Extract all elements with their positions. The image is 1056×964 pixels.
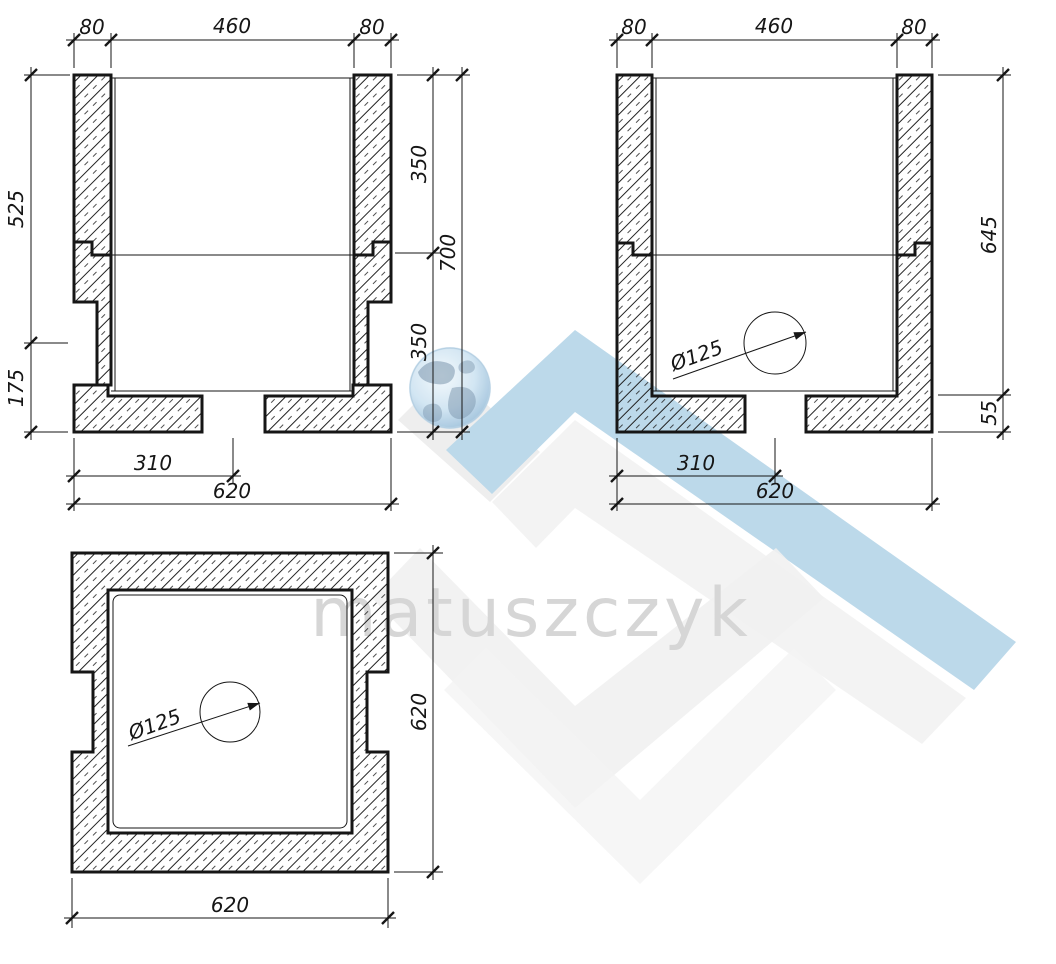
joint-step-lines [617,243,932,255]
dim-label-opening-460: 460 [755,14,793,38]
dim-lines-top [609,33,940,68]
diameter-arrow [247,703,260,711]
dim-label-55: 55 [977,400,1001,425]
dim-label-350-upper: 350 [407,145,431,183]
joint-step-lines [74,242,391,255]
dim-label-hole-diameter: Ø125 [666,335,726,376]
dim-label-620: 620 [756,479,794,503]
dim-label-175: 175 [4,369,28,407]
dim-label-left-wall-80: 80 [621,15,646,39]
diameter-arrow [793,332,806,340]
dim-label-620-vertical: 620 [407,693,431,731]
section-view-left: 80 460 80 525 175 350 350 700 310 620 [4,14,470,511]
drain-hole [200,682,260,742]
plan-view: Ø125 620 620 [64,545,443,928]
dim-label-645: 645 [977,216,1001,254]
dim-label-hole-diameter: Ø125 [124,704,184,745]
technical-drawing: matuszczyk 80 460 80 525 175 [0,0,1056,964]
base-slab-right [265,385,391,432]
dim-label-700: 700 [436,234,460,272]
dim-label-620: 620 [213,479,251,503]
dim-label-620-horizontal: 620 [211,893,249,917]
left-wall [74,75,111,385]
dim-lines-top [66,33,399,68]
interior-lines [111,78,354,391]
base-slab-left [74,385,202,432]
interior-lines [652,78,897,391]
dim-label-310: 310 [134,451,172,475]
dim-label-525: 525 [4,190,28,228]
right-wall [354,75,391,385]
dim-label-opening-460: 460 [213,14,251,38]
dim-label-350-lower: 350 [407,323,431,361]
dim-label-right-wall-80: 80 [901,15,926,39]
dim-label-right-wall-80: 80 [359,15,384,39]
dim-lines-left [24,67,70,440]
dim-label-310: 310 [677,451,715,475]
dim-label-left-wall-80: 80 [79,15,104,39]
